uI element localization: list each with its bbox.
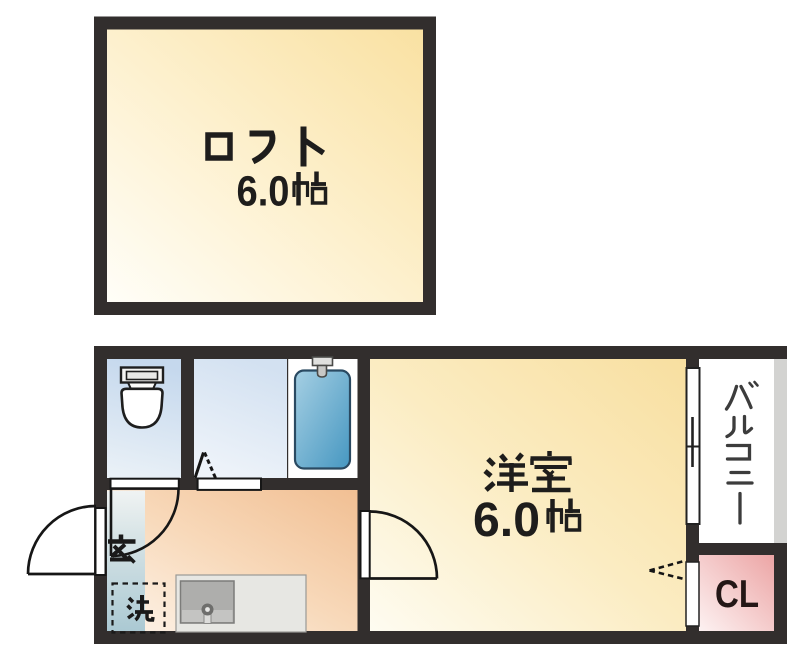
svg-text:6.0: 6.0 xyxy=(237,168,290,216)
svg-text:CL: CL xyxy=(715,573,759,616)
svg-text:6.0: 6.0 xyxy=(473,494,540,547)
